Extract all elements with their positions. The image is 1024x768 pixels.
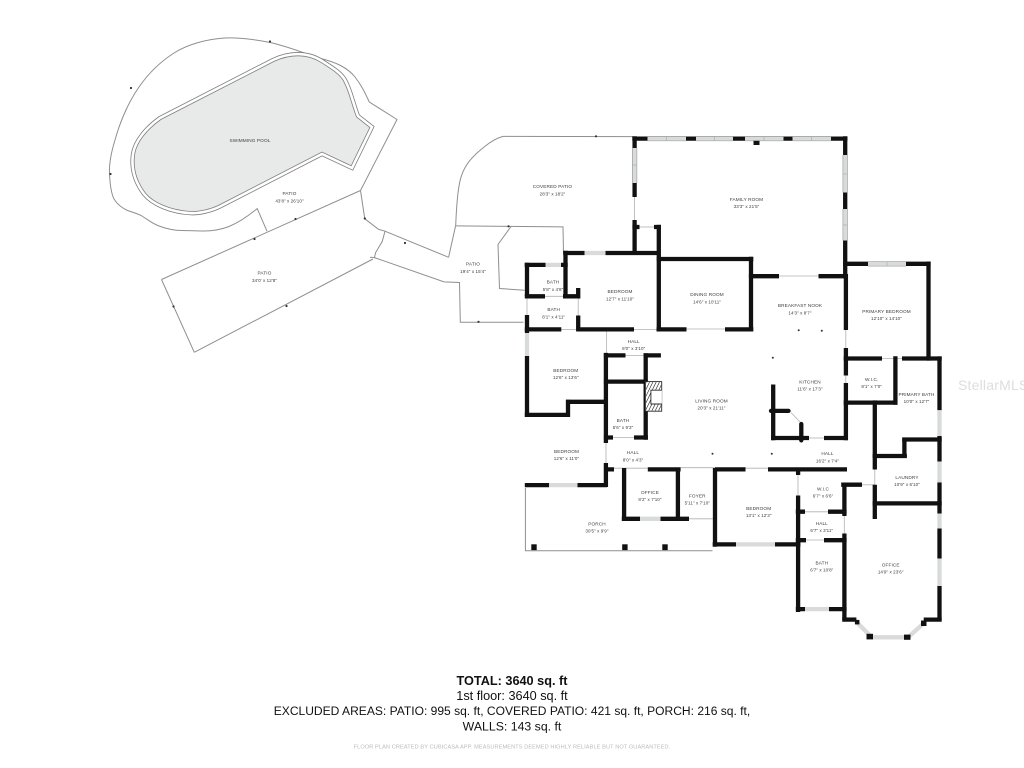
svg-text:EXCLUDED AREAS: PATIO: 995 sq.: EXCLUDED AREAS: PATIO: 995 sq. ft, COVER…	[274, 704, 750, 718]
svg-text:20'3" x 21'11": 20'3" x 21'11"	[698, 406, 726, 411]
svg-text:28'3" x 18'2": 28'3" x 18'2"	[540, 191, 566, 196]
svg-text:13'1" x 12'3": 13'1" x 12'3"	[746, 513, 772, 518]
svg-text:12'6" x 11'0": 12'6" x 11'0"	[554, 456, 580, 461]
svg-text:12'6" x 13'6": 12'6" x 13'6"	[553, 375, 579, 380]
svg-text:SWIMMING POOL: SWIMMING POOL	[230, 138, 271, 143]
svg-text:5'8" x 4'8": 5'8" x 4'8"	[543, 287, 564, 292]
svg-text:FLOOR PLAN CREATED BY CUBICASA: FLOOR PLAN CREATED BY CUBICASA APP. MEAS…	[354, 745, 671, 751]
svg-text:8'1" x 7'0": 8'1" x 7'0"	[861, 384, 882, 389]
svg-text:BREAKFAST NOOK: BREAKFAST NOOK	[778, 303, 823, 308]
svg-text:PRIMARY BATH: PRIMARY BATH	[898, 392, 934, 397]
svg-text:LIVING ROOM: LIVING ROOM	[695, 398, 728, 403]
svg-text:8'2" x 7'10": 8'2" x 7'10"	[638, 497, 661, 502]
svg-text:PATIO: PATIO	[466, 262, 480, 267]
svg-text:FOYER: FOYER	[689, 493, 706, 498]
svg-text:10'9" x 6'10": 10'9" x 6'10"	[894, 482, 920, 487]
svg-text:HALL: HALL	[816, 521, 828, 526]
svg-text:PRIMARY BEDROOM: PRIMARY BEDROOM	[862, 309, 911, 314]
svg-text:HALL: HALL	[821, 451, 833, 456]
svg-text:6'7" x 6'6": 6'7" x 6'6"	[813, 494, 834, 499]
svg-text:BEDROOM: BEDROOM	[746, 506, 771, 511]
svg-text:BATH: BATH	[617, 418, 630, 423]
svg-text:10'0" x 12'7": 10'0" x 12'7"	[904, 399, 930, 404]
svg-text:5'11" x 7'10": 5'11" x 7'10"	[685, 501, 711, 506]
svg-text:BATH: BATH	[547, 280, 560, 285]
svg-text:19'4" x 15'4": 19'4" x 15'4"	[460, 269, 486, 274]
svg-text:11'6" x 17'3": 11'6" x 17'3"	[797, 387, 823, 392]
svg-text:LAUNDRY: LAUNDRY	[895, 475, 919, 480]
svg-text:34'0' x 12'8": 34'0' x 12'8"	[252, 278, 277, 283]
svg-text:HALL: HALL	[627, 450, 639, 455]
svg-text:TOTAL: 3640 sq. ft: TOTAL: 3640 sq. ft	[457, 674, 569, 688]
svg-text:8'0" x 4'3": 8'0" x 4'3"	[623, 457, 644, 462]
svg-text:StellarMLS: StellarMLS	[958, 377, 1024, 393]
svg-text:OFFICE: OFFICE	[641, 490, 659, 495]
svg-text:BEDROOM: BEDROOM	[554, 449, 579, 454]
svg-text:HALL: HALL	[628, 339, 640, 344]
svg-text:PATIO: PATIO	[283, 191, 297, 196]
svg-text:33'3" x 21'5": 33'3" x 21'5"	[734, 204, 760, 209]
svg-text:12'7" x 11'10": 12'7" x 11'10"	[606, 296, 634, 301]
svg-text:5'6" x 9'3": 5'6" x 9'3"	[613, 425, 634, 430]
svg-text:43'8" x 26'10": 43'8" x 26'10"	[275, 198, 304, 203]
svg-text:8'1" x 4'11": 8'1" x 4'11"	[542, 314, 565, 319]
svg-text:8'0" x 3'10": 8'0" x 3'10"	[622, 346, 645, 351]
svg-text:W.I.C: W.I.C	[817, 486, 830, 491]
svg-text:DINING ROOM: DINING ROOM	[690, 292, 724, 297]
svg-text:14'9" x 23'6": 14'9" x 23'6"	[878, 570, 904, 575]
svg-text:BEDROOM: BEDROOM	[553, 368, 578, 373]
svg-text:BATH: BATH	[547, 307, 560, 312]
svg-text:BEDROOM: BEDROOM	[607, 289, 632, 294]
svg-text:12'10" x 14'10": 12'10" x 14'10"	[871, 316, 902, 321]
svg-text:BATH: BATH	[815, 560, 828, 565]
svg-text:1st floor: 3640 sq. ft: 1st floor: 3640 sq. ft	[456, 689, 568, 703]
svg-text:FAMILY ROOM: FAMILY ROOM	[730, 197, 763, 202]
svg-text:COVERED PATIO: COVERED PATIO	[533, 184, 573, 189]
svg-text:W.I.C.: W.I.C.	[865, 377, 878, 382]
svg-text:30'5" x 9'9": 30'5" x 9'9"	[585, 529, 608, 534]
svg-text:KITCHEN: KITCHEN	[799, 379, 820, 384]
svg-text:PATIO: PATIO	[258, 271, 272, 276]
svg-text:14'6" x 10'11": 14'6" x 10'11"	[693, 299, 721, 304]
svg-text:OFFICE: OFFICE	[882, 562, 900, 567]
svg-text:6'7" x 10'8": 6'7" x 10'8"	[810, 568, 833, 573]
svg-text:PORCH: PORCH	[588, 521, 606, 526]
svg-text:WALLS: 143 sq. ft: WALLS: 143 sq. ft	[463, 719, 562, 733]
svg-text:16'2" x 7'4": 16'2" x 7'4"	[816, 458, 839, 463]
svg-text:14'3" x 8'7": 14'3" x 8'7"	[788, 310, 811, 315]
svg-text:6'7" x 3'11": 6'7" x 3'11"	[810, 528, 833, 533]
